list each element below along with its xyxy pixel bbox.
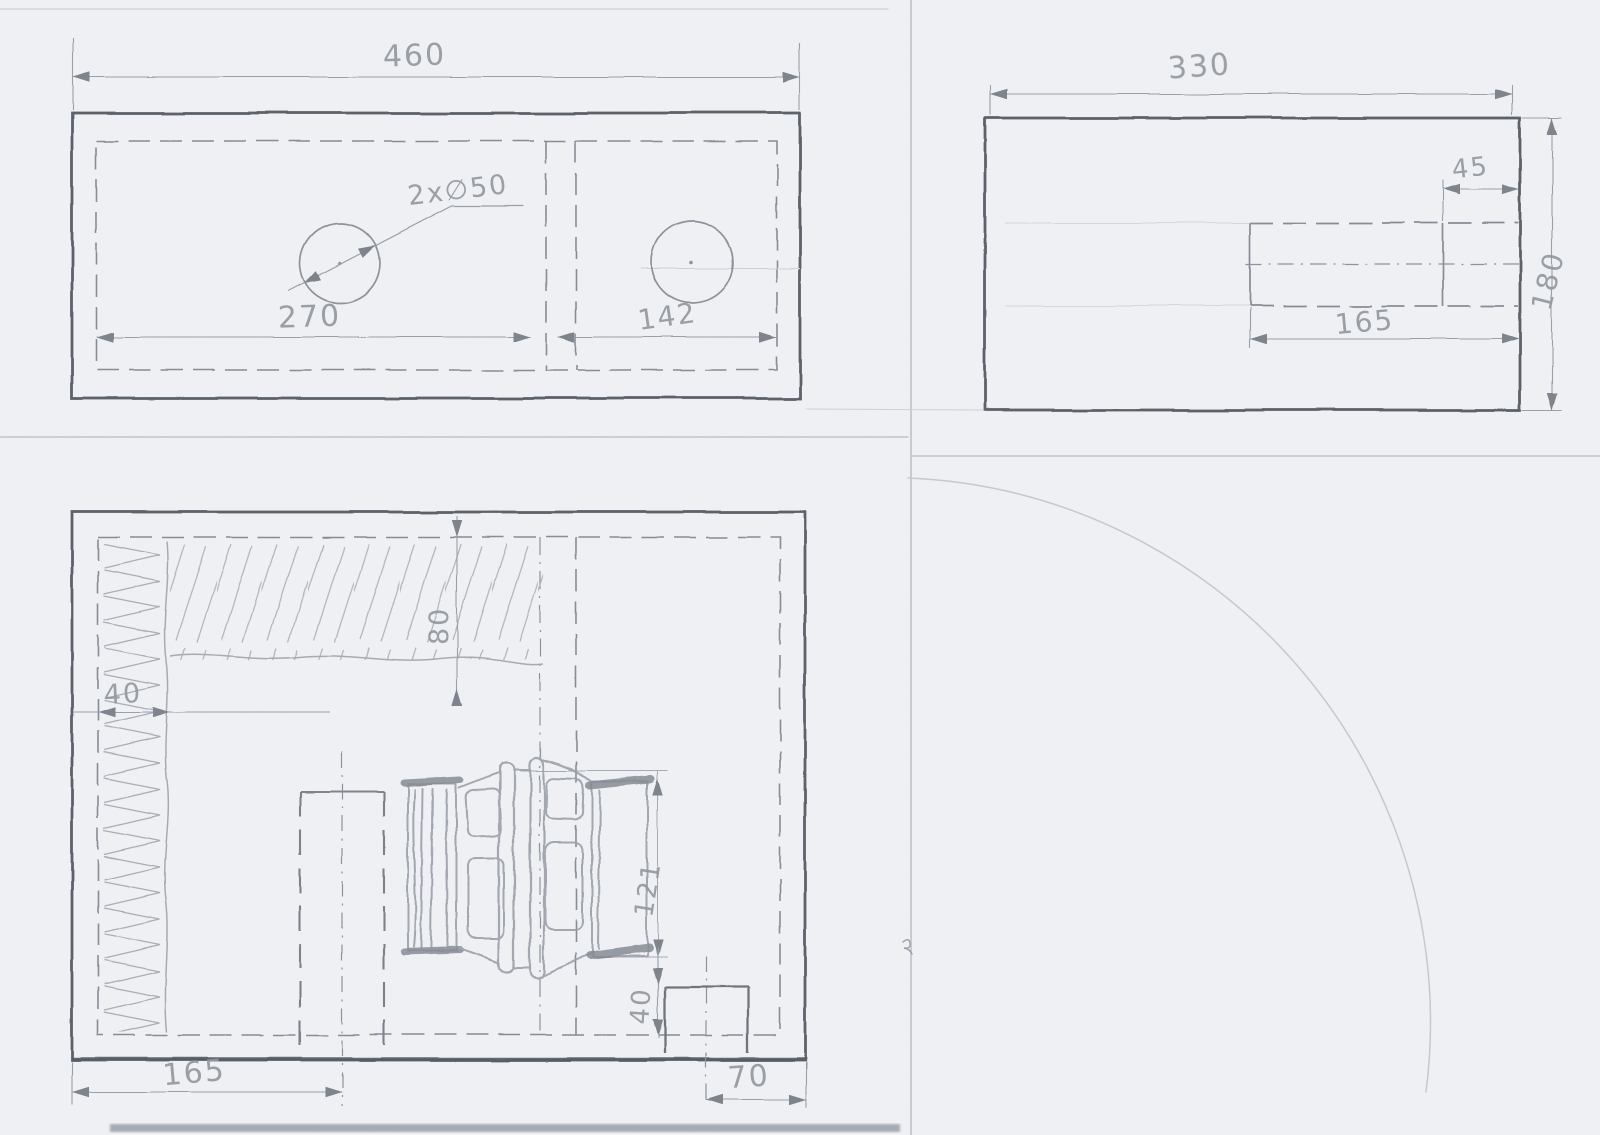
- label-165-side: 165: [1333, 303, 1395, 341]
- top-damping-hatch: [170, 540, 543, 660]
- label-40-bottom: 40: [625, 986, 658, 1025]
- label-460: 460: [382, 37, 446, 74]
- label-80: 80: [424, 607, 455, 645]
- bottom-scan-shadow: [110, 1124, 900, 1132]
- scanned-sketch-page: 460 2x∅50 270 142 330 45 165 180 80 40 1…: [0, 0, 1600, 1135]
- label-70: 70: [727, 1058, 772, 1096]
- label-270: 270: [277, 299, 341, 336]
- label-330: 330: [1167, 47, 1233, 86]
- label-45: 45: [1450, 152, 1490, 186]
- label-165-bottom: 165: [161, 1053, 227, 1093]
- sketch-canvas: 460 2x∅50 270 142 330 45 165 180 80 40 1…: [0, 0, 1600, 1135]
- left-damping-zigzag: [101, 543, 165, 1032]
- label-40-left: 40: [103, 678, 143, 711]
